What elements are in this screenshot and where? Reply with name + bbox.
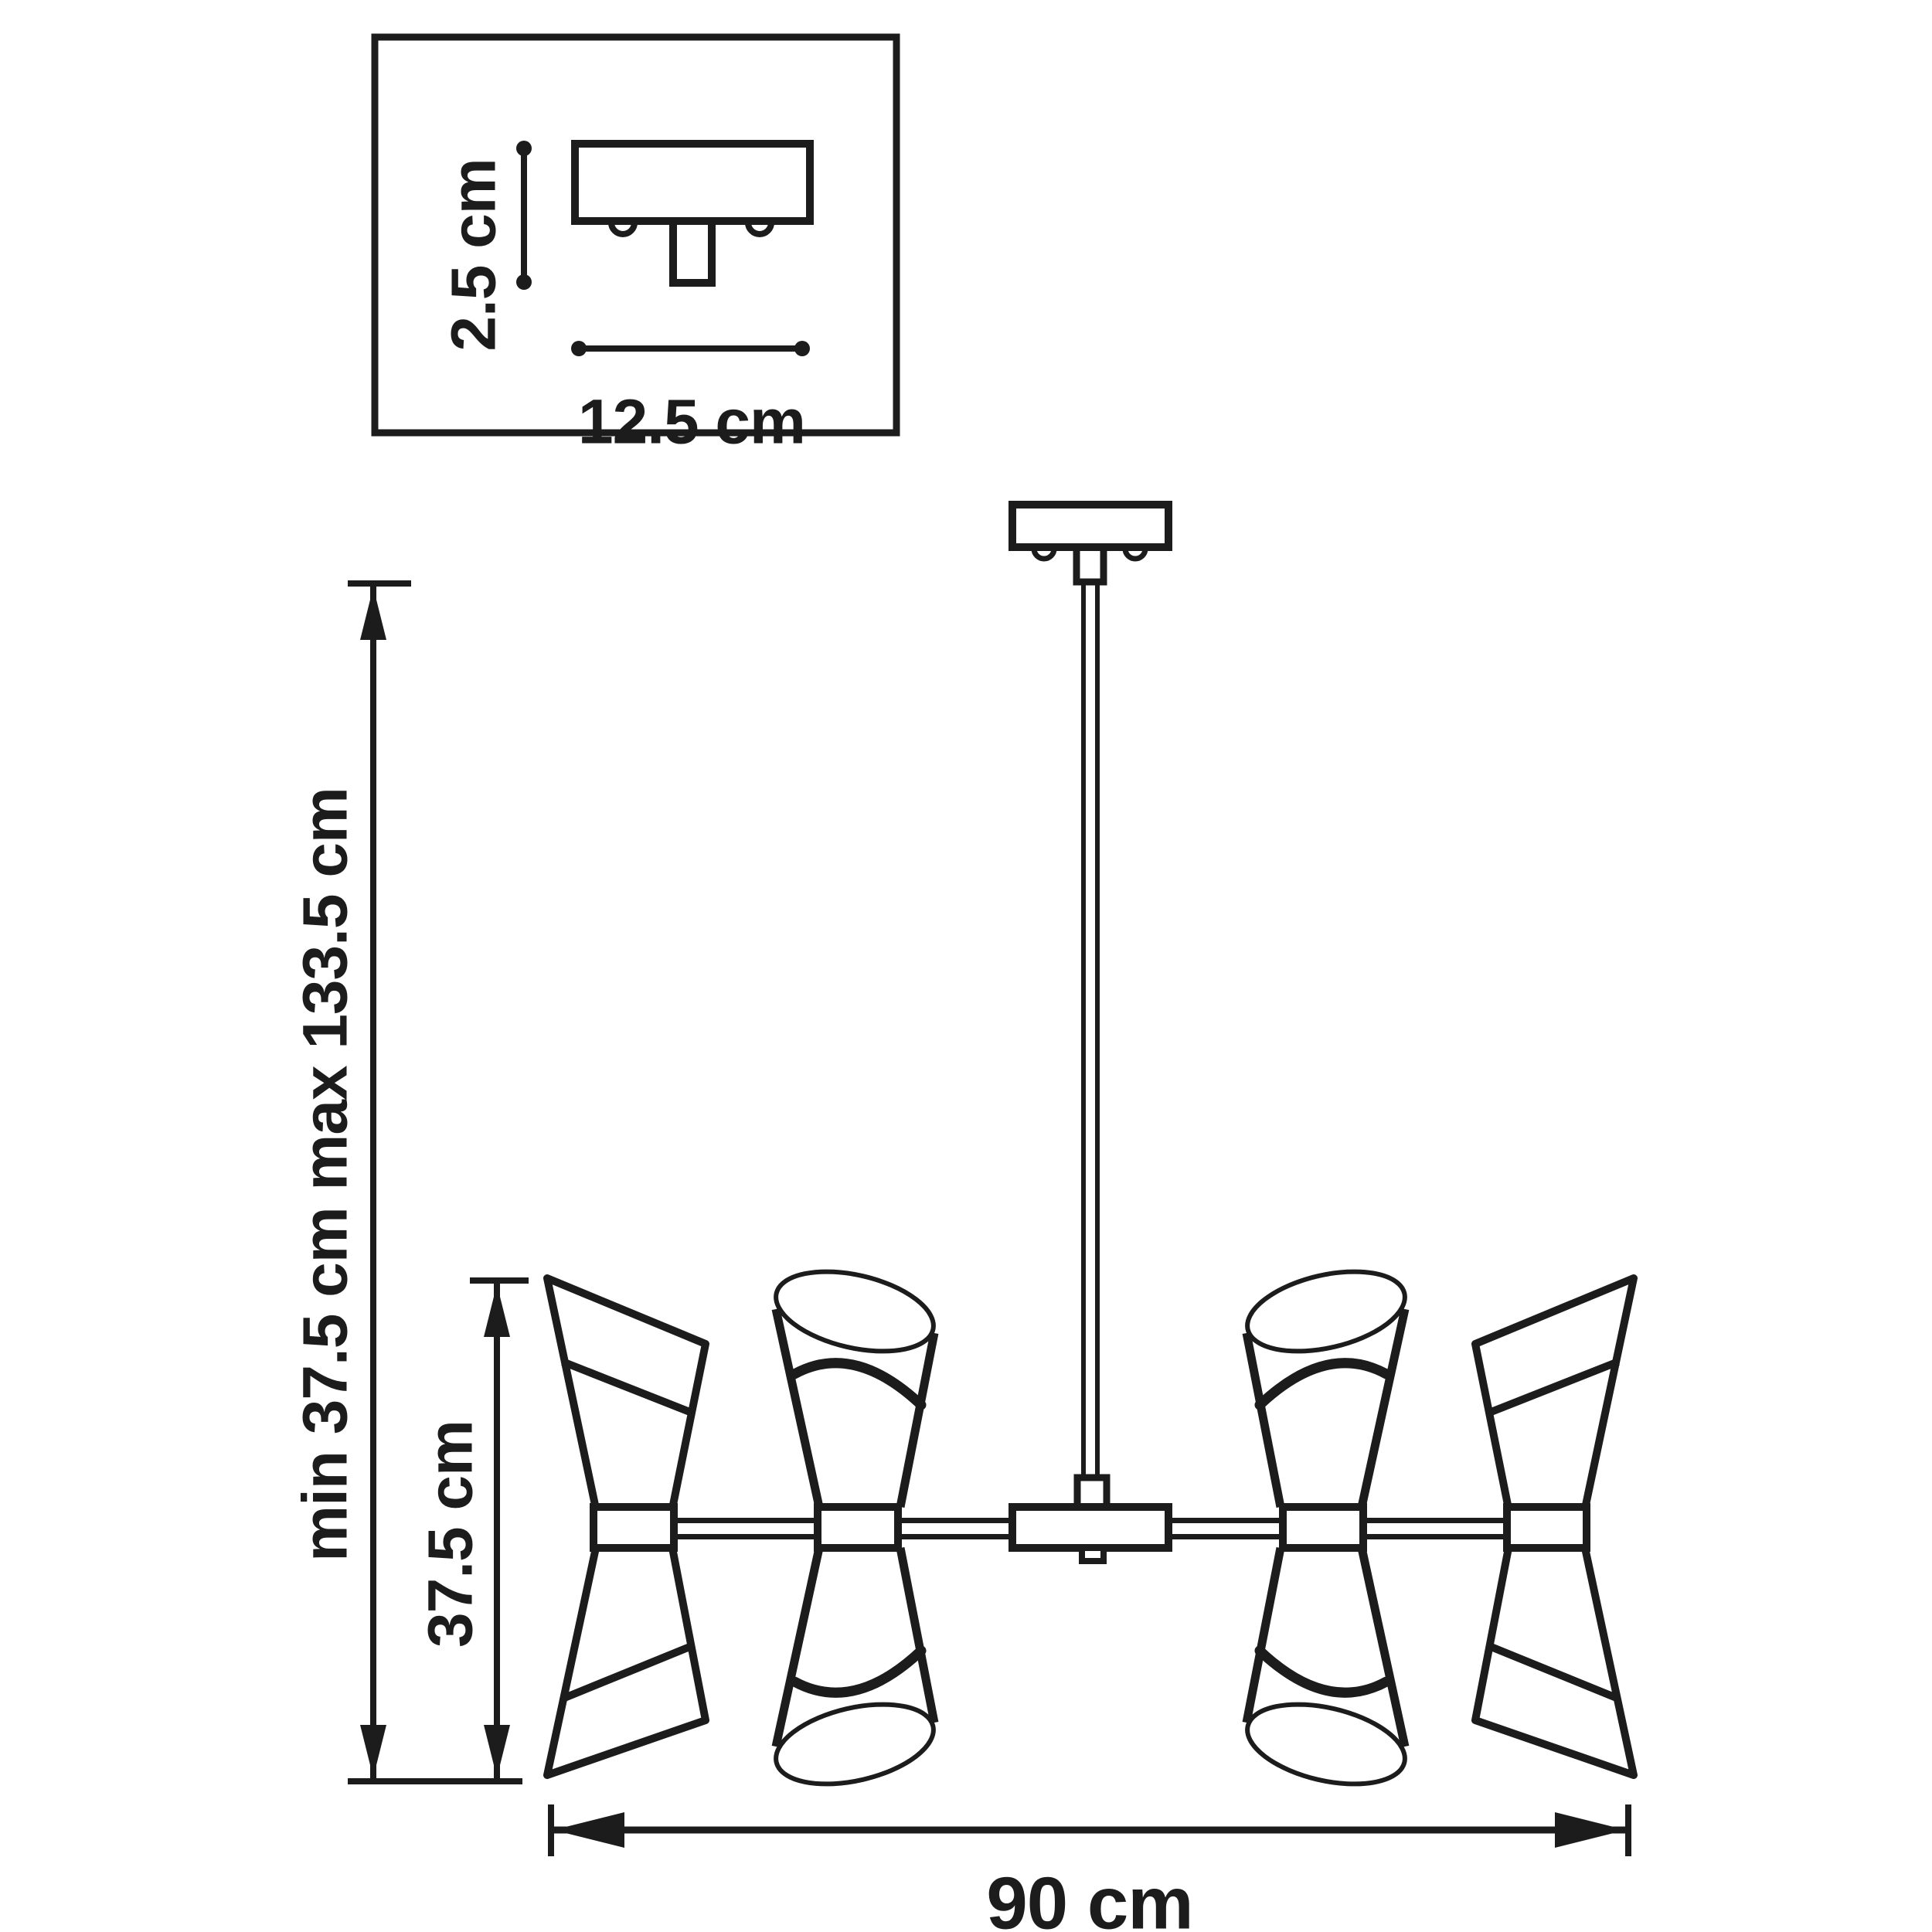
hub-nub [1082,1548,1104,1561]
plate-body [575,144,810,221]
shade-3-upper-left-side [1247,1333,1281,1507]
socket-3 [1283,1507,1363,1548]
hub-body [1012,1507,1168,1548]
shade-4-lower-cone [1475,1548,1634,1775]
ceiling-canopy [1012,505,1168,582]
shade-3-upper-right-side [1362,1309,1405,1507]
shade-height-label: 37.5 cm [416,1420,486,1648]
shade-2-lower-band [794,1651,921,1692]
width-dimension: 90 cm [551,1804,1628,1932]
width-label: 90 cm [986,1862,1192,1932]
arrow-down [360,1725,386,1777]
shade-3-upper-band [1260,1363,1386,1405]
plate-stem [673,221,712,283]
shade-3-bottom-rim [1240,1691,1413,1798]
chandelier-dimension-drawing: 2.5 cm 12.5 cm [0,0,1932,1932]
shade-2-lower-left-side [776,1548,819,1747]
arrow-up [360,587,386,640]
inset-detail-box: 2.5 cm 12.5 cm [375,37,896,457]
shade-1-upper-cone [547,1278,706,1509]
shade-2-bottom-rim [768,1691,941,1798]
dim-dot [516,274,532,290]
shade-3-top-rim [1240,1258,1413,1365]
inset-height-label: 2.5 cm [439,158,509,351]
inset-width-label: 12.5 cm [578,387,805,457]
shade-3-lower-band [1260,1651,1386,1692]
arrow-right [1555,1812,1626,1848]
canopy-plate [1012,505,1168,547]
dim-dot [571,341,587,356]
dim-dot [516,141,532,156]
shade-1-lower-cone [547,1548,706,1775]
dim-dot [794,341,810,356]
socket-2 [818,1507,898,1548]
chandelier-drawing [547,505,1634,1798]
arrow-down [484,1725,510,1777]
drop-height-dimension: min 37.5 cm max 133.5 cm [291,583,411,1781]
socket-4 [1507,1507,1587,1548]
arrow-up [484,1284,510,1337]
shade-3-lower-left-side [1247,1548,1281,1723]
socket-1 [594,1507,674,1548]
shade-4-upper-cone [1475,1278,1634,1509]
shade-2-upper-left-side [776,1309,819,1507]
center-hub [1012,1478,1168,1561]
shade-2-lower-right-side [900,1548,934,1723]
canopy-stem [1077,547,1104,582]
shade-2-upper-right-side [900,1333,934,1507]
arrow-left [553,1812,624,1848]
hanging-rod [1083,580,1097,1481]
shade-2-top-rim [768,1258,941,1365]
shade-3-lower-right-side [1362,1548,1405,1747]
shade-2-upper-band [794,1363,921,1405]
drop-height-label: min 37.5 cm max 133.5 cm [291,787,361,1562]
